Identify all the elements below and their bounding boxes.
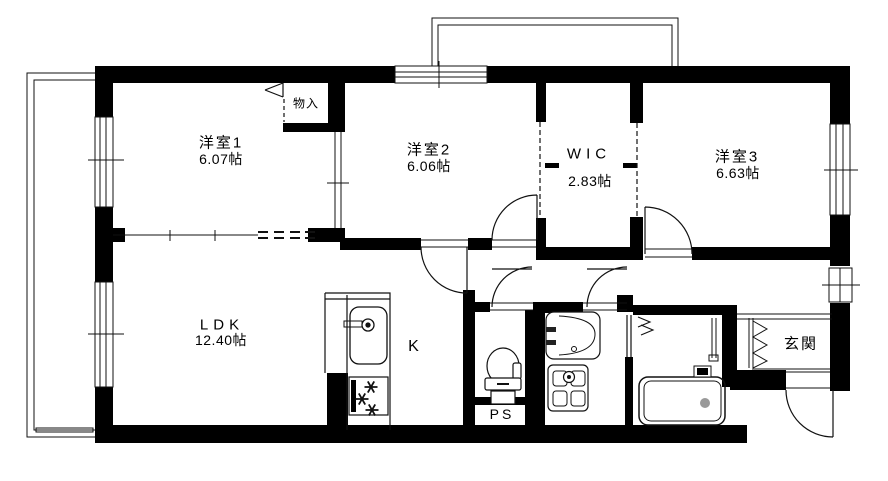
bath-faucet-icon bbox=[694, 366, 711, 377]
bath-fixtures bbox=[638, 317, 725, 425]
room-size-yoshitsu2: 6.06帖 bbox=[407, 156, 451, 176]
meter-box bbox=[822, 268, 860, 302]
room-label-entrance: 玄関 bbox=[784, 333, 818, 354]
washer-pan-icon bbox=[548, 365, 588, 411]
washbasin-icon bbox=[546, 312, 600, 359]
room-label-wic: WIC bbox=[567, 146, 611, 163]
room-label-pipe-space: PS bbox=[490, 406, 515, 422]
room-label-kitchen: K bbox=[408, 338, 420, 356]
laundry-fixtures bbox=[546, 312, 600, 411]
room-size-yoshitsu1: 6.07帖 bbox=[199, 149, 243, 169]
shoe-cabinet-icon bbox=[749, 318, 767, 368]
shower-icon bbox=[638, 317, 653, 335]
sink-icon bbox=[344, 307, 387, 364]
bathtub-icon bbox=[639, 377, 725, 425]
room-size-ldk: 12.40帖 bbox=[195, 330, 247, 350]
floorplan-drawing bbox=[0, 0, 888, 481]
walls bbox=[95, 66, 850, 443]
room-label-closet: 物入 bbox=[293, 95, 319, 112]
room-size-wic: 2.83帖 bbox=[568, 171, 612, 191]
floorplan: 洋室1 6.07帖 洋室2 6.06帖 WIC 2.83帖 洋室3 6.63帖 … bbox=[0, 0, 888, 481]
room-size-yoshitsu3: 6.63帖 bbox=[716, 163, 760, 183]
toilet-icon bbox=[485, 348, 521, 404]
stove-icon bbox=[349, 377, 388, 416]
